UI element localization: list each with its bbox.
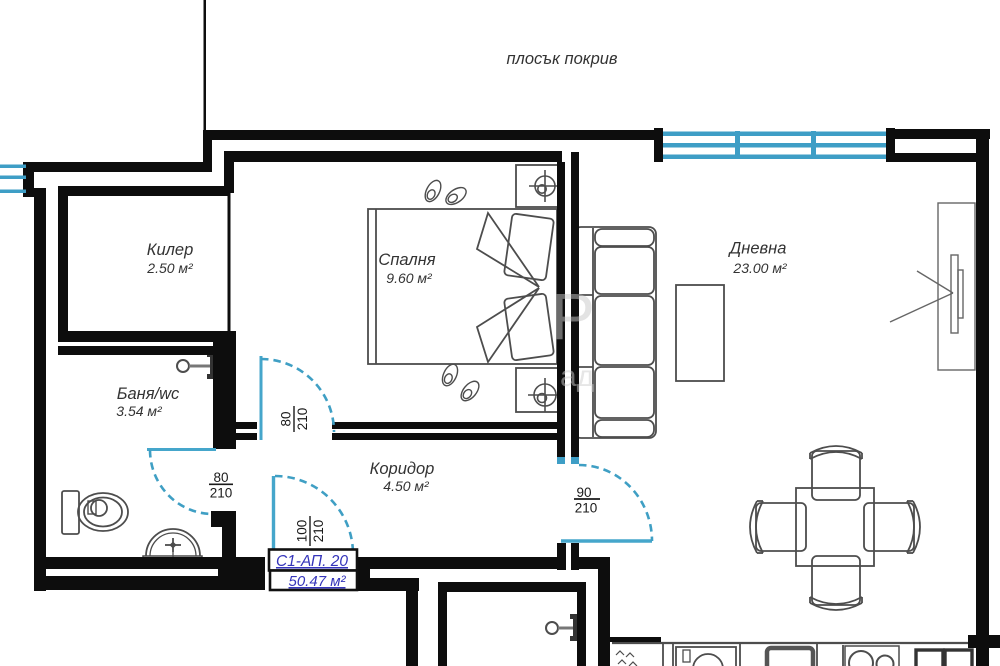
svg-text:9.60 м²: 9.60 м² — [386, 270, 433, 286]
svg-text:Баня/wc: Баня/wc — [117, 385, 180, 403]
svg-text:210: 210 — [575, 501, 598, 516]
svg-text:4.50 м²: 4.50 м² — [383, 478, 430, 494]
svg-text:210: 210 — [210, 486, 233, 501]
svg-text:210: 210 — [311, 520, 326, 543]
svg-text:100: 100 — [295, 520, 310, 543]
svg-text:Килер: Килер — [147, 241, 194, 259]
svg-text:Спалня: Спалня — [378, 251, 435, 269]
svg-text:80: 80 — [213, 470, 228, 485]
svg-text:90: 90 — [576, 485, 591, 500]
svg-text:Коридор: Коридор — [370, 460, 435, 478]
svg-text:80: 80 — [279, 411, 294, 426]
svg-text:ад: ад — [560, 360, 594, 393]
svg-text:23.00 м²: 23.00 м² — [732, 260, 788, 276]
svg-text:С1-АП. 20: С1-АП. 20 — [276, 553, 348, 570]
svg-text:210: 210 — [295, 408, 310, 431]
svg-text:Дневна: Дневна — [728, 240, 787, 258]
svg-text:3.54 м²: 3.54 м² — [116, 403, 163, 419]
svg-text:2.50 м²: 2.50 м² — [146, 260, 194, 276]
svg-text:Р: Р — [551, 279, 595, 353]
svg-text:плосък покрив: плосък покрив — [506, 50, 617, 68]
svg-text:50.47 м²: 50.47 м² — [289, 573, 347, 590]
